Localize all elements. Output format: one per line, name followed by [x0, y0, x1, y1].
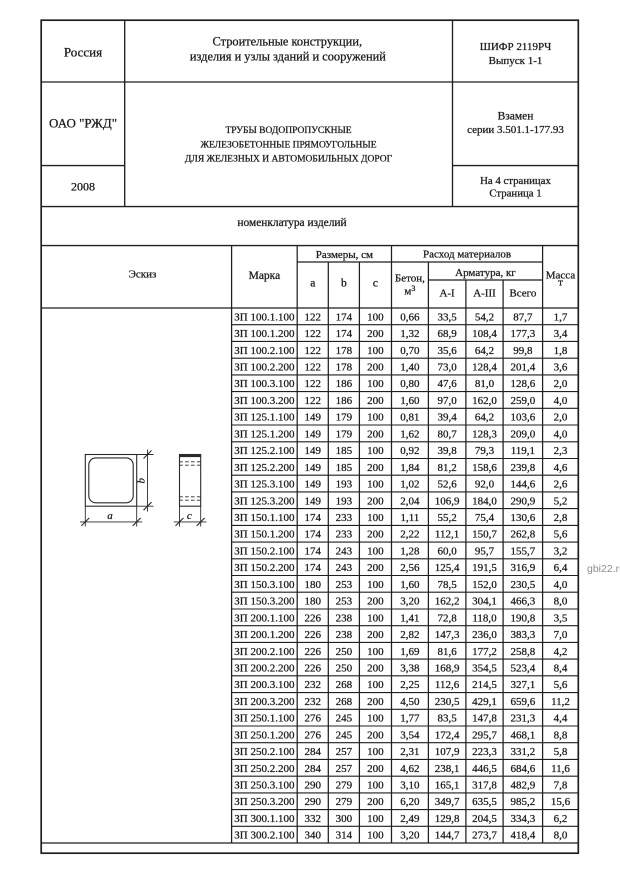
svg-text:ЗП 125.1.200: ЗП 125.1.200 — [234, 428, 295, 440]
svg-text:165,1: 165,1 — [435, 780, 460, 792]
svg-text:200: 200 — [367, 495, 384, 507]
svg-text:180: 180 — [305, 579, 322, 591]
svg-text:ЗП 300.1.100: ЗП 300.1.100 — [234, 813, 295, 825]
svg-text:64,2: 64,2 — [475, 412, 494, 424]
svg-text:262,8: 262,8 — [511, 529, 536, 541]
svg-text:6,20: 6,20 — [400, 796, 420, 808]
svg-text:Арматура, кг: Арматура, кг — [455, 267, 516, 279]
svg-text:ЗП 200.1.200: ЗП 200.1.200 — [234, 629, 295, 641]
svg-text:259,0: 259,0 — [511, 395, 536, 407]
svg-text:100: 100 — [367, 412, 384, 424]
svg-text:174: 174 — [305, 529, 322, 541]
svg-text:200: 200 — [367, 395, 384, 407]
svg-text:Расход материалов: Расход материалов — [423, 248, 511, 260]
svg-text:130,6: 130,6 — [511, 512, 536, 524]
svg-text:284: 284 — [305, 763, 322, 775]
svg-text:4,6: 4,6 — [554, 462, 568, 474]
svg-text:200: 200 — [367, 428, 384, 440]
svg-text:186: 186 — [336, 395, 353, 407]
svg-text:149: 149 — [305, 479, 322, 491]
svg-text:2,22: 2,22 — [400, 529, 419, 541]
svg-text:ЗП 100.2.100: ЗП 100.2.100 — [234, 345, 295, 357]
svg-text:ЗП 250.1.100: ЗП 250.1.100 — [234, 713, 295, 725]
svg-text:5,6: 5,6 — [554, 529, 568, 541]
svg-text:144,7: 144,7 — [435, 830, 460, 842]
svg-text:3,4: 3,4 — [554, 328, 568, 340]
svg-text:226: 226 — [305, 612, 322, 624]
svg-text:4,0: 4,0 — [554, 579, 568, 591]
svg-text:0,66: 0,66 — [400, 311, 420, 323]
svg-text:446,5: 446,5 — [472, 763, 497, 775]
svg-text:ОАО "РЖД": ОАО "РЖД" — [49, 116, 117, 131]
svg-text:122: 122 — [305, 395, 322, 407]
svg-text:100: 100 — [367, 746, 384, 758]
svg-text:354,5: 354,5 — [472, 663, 497, 675]
svg-text:168,9: 168,9 — [435, 663, 460, 675]
svg-text:129,8: 129,8 — [435, 813, 460, 825]
svg-text:gbi22.ru: gbi22.ru — [587, 563, 620, 575]
svg-text:Размеры, см: Размеры, см — [316, 249, 373, 261]
svg-text:3,6: 3,6 — [554, 362, 568, 374]
svg-text:81,2: 81,2 — [437, 462, 456, 474]
svg-text:8,0: 8,0 — [554, 830, 568, 842]
svg-text:300: 300 — [336, 813, 353, 825]
svg-text:ЗП 100.2.200: ЗП 100.2.200 — [234, 362, 295, 374]
svg-text:239,8: 239,8 — [511, 462, 536, 474]
svg-text:ЗП 100.3.200: ЗП 100.3.200 — [234, 395, 295, 407]
svg-text:2,0: 2,0 — [554, 412, 568, 424]
svg-text:6,4: 6,4 — [554, 562, 568, 574]
svg-text:118,0: 118,0 — [472, 612, 497, 624]
svg-text:100: 100 — [367, 780, 384, 792]
svg-text:ЗП 150.3.200: ЗП 150.3.200 — [234, 596, 295, 608]
svg-text:номенклатура изделий: номенклатура изделий — [237, 217, 346, 229]
svg-text:5,2: 5,2 — [554, 495, 568, 507]
svg-text:99,8: 99,8 — [513, 345, 533, 357]
svg-text:122: 122 — [305, 362, 322, 374]
svg-text:Эскиз: Эскиз — [129, 269, 157, 281]
svg-text:482,9: 482,9 — [511, 780, 536, 792]
svg-text:а: а — [107, 510, 113, 522]
svg-text:174: 174 — [336, 311, 353, 323]
svg-text:193: 193 — [336, 479, 353, 491]
svg-text:268: 268 — [336, 696, 353, 708]
svg-text:4,4: 4,4 — [554, 713, 568, 725]
svg-text:108,4: 108,4 — [472, 328, 497, 340]
svg-text:185: 185 — [336, 445, 353, 457]
svg-text:Выпуск 1-1: Выпуск 1-1 — [489, 55, 543, 67]
svg-text:ТРУБЫ ВОДОПРОПУСКНЫЕ: ТРУБЫ ВОДОПРОПУСКНЫЕ — [225, 126, 351, 136]
svg-text:ЗП 125.2.200: ЗП 125.2.200 — [234, 462, 295, 474]
svg-text:b: b — [136, 477, 148, 483]
svg-text:204,5: 204,5 — [472, 813, 497, 825]
svg-text:ЗП 125.3.200: ЗП 125.3.200 — [234, 495, 295, 507]
svg-text:3,2: 3,2 — [554, 545, 568, 557]
svg-text:2008: 2008 — [71, 179, 95, 193]
svg-text:75,4: 75,4 — [475, 512, 495, 524]
svg-text:253: 253 — [336, 596, 353, 608]
svg-text:174: 174 — [305, 545, 322, 557]
svg-text:128,4: 128,4 — [472, 362, 497, 374]
svg-text:276: 276 — [305, 713, 322, 725]
svg-text:245: 245 — [336, 713, 353, 725]
svg-text:684,6: 684,6 — [511, 763, 536, 775]
svg-text:100: 100 — [367, 579, 384, 591]
svg-text:200: 200 — [367, 529, 384, 541]
svg-text:ЗП 100.3.100: ЗП 100.3.100 — [234, 378, 295, 390]
svg-text:238: 238 — [336, 612, 353, 624]
svg-text:144,6: 144,6 — [511, 479, 536, 491]
svg-text:81,0: 81,0 — [475, 378, 495, 390]
svg-text:Страница 1: Страница 1 — [489, 187, 541, 199]
svg-text:985,2: 985,2 — [511, 796, 536, 808]
svg-text:ЗП 125.3.100: ЗП 125.3.100 — [234, 479, 295, 491]
svg-text:1,69: 1,69 — [400, 646, 420, 658]
svg-text:2,82: 2,82 — [400, 629, 419, 641]
svg-text:429,1: 429,1 — [472, 696, 497, 708]
svg-text:2,49: 2,49 — [400, 813, 420, 825]
svg-text:200: 200 — [367, 629, 384, 641]
svg-text:100: 100 — [367, 311, 384, 323]
svg-text:209,0: 209,0 — [511, 428, 536, 440]
svg-text:4,2: 4,2 — [554, 646, 568, 658]
svg-text:На 4 страницах: На 4 страницах — [480, 175, 551, 187]
svg-text:331,2: 331,2 — [511, 746, 536, 758]
svg-text:8,4: 8,4 — [554, 663, 568, 675]
svg-text:332: 332 — [305, 813, 322, 825]
svg-text:200: 200 — [367, 796, 384, 808]
svg-text:1,41: 1,41 — [400, 612, 419, 624]
svg-text:238: 238 — [336, 629, 353, 641]
svg-text:1,60: 1,60 — [400, 579, 420, 591]
svg-text:60,0: 60,0 — [437, 545, 457, 557]
svg-text:178: 178 — [336, 345, 353, 357]
svg-text:с: с — [187, 510, 192, 522]
svg-text:0,70: 0,70 — [400, 345, 420, 357]
svg-text:100: 100 — [367, 612, 384, 624]
svg-text:78,5: 78,5 — [437, 579, 457, 591]
svg-text:314: 314 — [336, 830, 353, 842]
svg-text:200: 200 — [367, 763, 384, 775]
svg-text:193: 193 — [336, 495, 353, 507]
svg-text:349,7: 349,7 — [435, 796, 460, 808]
svg-text:253: 253 — [336, 579, 353, 591]
svg-text:1,77: 1,77 — [400, 713, 420, 725]
svg-text:316,9: 316,9 — [511, 562, 536, 574]
svg-text:290: 290 — [305, 780, 322, 792]
svg-text:334,3: 334,3 — [511, 813, 536, 825]
svg-text:185: 185 — [336, 462, 353, 474]
svg-text:200: 200 — [367, 729, 384, 741]
svg-text:1,60: 1,60 — [400, 395, 420, 407]
svg-text:3,10: 3,10 — [400, 780, 420, 792]
svg-text:64,2: 64,2 — [475, 345, 494, 357]
svg-text:200: 200 — [367, 462, 384, 474]
svg-text:ЗП 150.2.100: ЗП 150.2.100 — [234, 545, 295, 557]
svg-text:1,8: 1,8 — [554, 345, 568, 357]
svg-text:250: 250 — [336, 663, 353, 675]
svg-text:149: 149 — [305, 462, 322, 474]
svg-text:54,2: 54,2 — [475, 311, 494, 323]
svg-text:ЗП 250.2.100: ЗП 250.2.100 — [234, 746, 295, 758]
svg-text:39,8: 39,8 — [437, 445, 457, 457]
svg-text:4,0: 4,0 — [554, 395, 568, 407]
svg-text:100: 100 — [367, 512, 384, 524]
svg-text:100: 100 — [367, 445, 384, 457]
svg-text:268: 268 — [336, 679, 353, 691]
svg-text:0,80: 0,80 — [400, 378, 420, 390]
svg-text:147,3: 147,3 — [435, 629, 460, 641]
svg-text:33,5: 33,5 — [437, 311, 457, 323]
svg-text:81,6: 81,6 — [437, 646, 457, 658]
svg-text:ЗП 100.1.200: ЗП 100.1.200 — [234, 328, 295, 340]
svg-text:290,9: 290,9 — [511, 495, 536, 507]
svg-text:122: 122 — [305, 328, 322, 340]
svg-text:232: 232 — [305, 679, 322, 691]
svg-text:83,5: 83,5 — [437, 713, 457, 725]
svg-text:233: 233 — [336, 529, 353, 541]
svg-text:155,7: 155,7 — [511, 545, 536, 557]
svg-text:15,6: 15,6 — [551, 796, 571, 808]
svg-text:Всего: Всего — [509, 287, 536, 299]
svg-text:180: 180 — [305, 596, 322, 608]
svg-text:изделия и узлы зданий и сооруж: изделия и узлы зданий и сооружений — [190, 49, 386, 63]
svg-text:1,11: 1,11 — [400, 512, 419, 524]
svg-text:Строительные конструкции,: Строительные конструкции, — [213, 34, 363, 48]
svg-text:174: 174 — [336, 328, 353, 340]
svg-text:174: 174 — [305, 562, 322, 574]
svg-text:8,0: 8,0 — [554, 596, 568, 608]
svg-text:250: 250 — [336, 646, 353, 658]
svg-text:327,1: 327,1 — [511, 679, 536, 691]
svg-text:149: 149 — [305, 495, 322, 507]
svg-text:186: 186 — [336, 378, 353, 390]
svg-text:ЗП 125.1.100: ЗП 125.1.100 — [234, 412, 295, 424]
svg-text:2,8: 2,8 — [554, 512, 568, 524]
svg-text:177,3: 177,3 — [511, 328, 536, 340]
svg-text:0,81: 0,81 — [400, 412, 419, 424]
svg-text:2,04: 2,04 — [400, 495, 420, 507]
svg-text:А-I: А-I — [439, 287, 455, 299]
svg-text:284: 284 — [305, 746, 322, 758]
svg-text:233: 233 — [336, 512, 353, 524]
svg-text:100: 100 — [367, 679, 384, 691]
svg-text:174: 174 — [305, 512, 322, 524]
svg-text:112,1: 112,1 — [435, 529, 459, 541]
svg-text:80,7: 80,7 — [437, 428, 457, 440]
svg-text:79,3: 79,3 — [475, 445, 495, 457]
svg-text:200: 200 — [367, 696, 384, 708]
svg-text:ЗП 150.3.100: ЗП 150.3.100 — [234, 579, 295, 591]
svg-text:659,6: 659,6 — [511, 696, 536, 708]
svg-text:ЗП 250.1.200: ЗП 250.1.200 — [234, 729, 295, 741]
svg-text:ШИФР 2119РЧ: ШИФР 2119РЧ — [480, 41, 551, 53]
svg-text:1,40: 1,40 — [400, 362, 420, 374]
svg-text:1,62: 1,62 — [400, 428, 419, 440]
svg-text:55,2: 55,2 — [437, 512, 456, 524]
svg-text:150,7: 150,7 — [472, 529, 497, 541]
svg-text:107,9: 107,9 — [435, 746, 460, 758]
svg-text:340: 340 — [305, 830, 322, 842]
svg-text:ЗП 200.3.200: ЗП 200.3.200 — [234, 696, 295, 708]
svg-text:223,3: 223,3 — [472, 746, 497, 758]
svg-text:100: 100 — [367, 345, 384, 357]
svg-text:230,5: 230,5 — [511, 579, 536, 591]
svg-text:257: 257 — [336, 746, 353, 758]
svg-text:230,5: 230,5 — [435, 696, 460, 708]
svg-text:ЗП 150.2.200: ЗП 150.2.200 — [234, 562, 295, 574]
svg-text:122: 122 — [305, 378, 322, 390]
svg-text:122: 122 — [305, 311, 322, 323]
svg-text:2,25: 2,25 — [400, 679, 420, 691]
svg-text:178: 178 — [336, 362, 353, 374]
svg-text:112,6: 112,6 — [435, 679, 460, 691]
svg-text:2,6: 2,6 — [554, 479, 568, 491]
svg-text:418,4: 418,4 — [511, 830, 536, 842]
svg-text:95,7: 95,7 — [475, 545, 495, 557]
svg-text:128,3: 128,3 — [472, 428, 497, 440]
svg-text:68,9: 68,9 — [437, 328, 457, 340]
svg-text:149: 149 — [305, 445, 322, 457]
svg-text:158,6: 158,6 — [472, 462, 497, 474]
svg-text:73,0: 73,0 — [437, 362, 457, 374]
svg-text:т: т — [558, 277, 563, 289]
svg-text:383,3: 383,3 — [511, 629, 536, 641]
svg-text:Взамен: Взамен — [498, 110, 534, 122]
svg-text:245: 245 — [336, 729, 353, 741]
svg-text:149: 149 — [305, 412, 322, 424]
svg-text:3,20: 3,20 — [400, 596, 420, 608]
svg-text:100: 100 — [367, 545, 384, 557]
svg-text:290: 290 — [305, 796, 322, 808]
svg-text:119,1: 119,1 — [511, 445, 535, 457]
svg-text:295,7: 295,7 — [472, 729, 497, 741]
svg-text:149: 149 — [305, 428, 322, 440]
svg-text:200: 200 — [367, 328, 384, 340]
svg-text:ДЛЯ ЖЕЛЕЗНЫХ И АВТОМОБИЛЬНЫХ Д: ДЛЯ ЖЕЛЕЗНЫХ И АВТОМОБИЛЬНЫХ ДОРОГ — [185, 155, 393, 165]
svg-text:100: 100 — [367, 378, 384, 390]
svg-text:ЗП 250.3.100: ЗП 250.3.100 — [234, 780, 295, 792]
svg-text:236,0: 236,0 — [472, 629, 497, 641]
svg-text:11,2: 11,2 — [551, 696, 570, 708]
svg-text:8,8: 8,8 — [554, 729, 568, 741]
svg-text:1,28: 1,28 — [400, 545, 420, 557]
svg-text:2,31: 2,31 — [400, 746, 419, 758]
svg-text:ЗП 200.3.100: ЗП 200.3.100 — [234, 679, 295, 691]
svg-text:2,56: 2,56 — [400, 562, 420, 574]
svg-text:172,4: 172,4 — [435, 729, 460, 741]
svg-text:92,0: 92,0 — [475, 479, 495, 491]
svg-text:179: 179 — [336, 428, 353, 440]
svg-text:11,6: 11,6 — [551, 763, 570, 775]
svg-text:Россия: Россия — [64, 44, 102, 59]
svg-text:72,8: 72,8 — [437, 612, 457, 624]
svg-text:243: 243 — [336, 545, 353, 557]
svg-text:243: 243 — [336, 562, 353, 574]
svg-text:128,6: 128,6 — [511, 378, 536, 390]
svg-text:0,92: 0,92 — [400, 445, 419, 457]
svg-text:177,2: 177,2 — [472, 646, 497, 658]
svg-text:232: 232 — [305, 696, 322, 708]
svg-text:273,7: 273,7 — [472, 830, 497, 842]
svg-text:4,0: 4,0 — [554, 428, 568, 440]
svg-text:106,9: 106,9 — [435, 495, 460, 507]
svg-text:1,84: 1,84 — [400, 462, 420, 474]
svg-text:179: 179 — [336, 412, 353, 424]
svg-text:276: 276 — [305, 729, 322, 741]
svg-text:226: 226 — [305, 663, 322, 675]
svg-text:100: 100 — [367, 813, 384, 825]
svg-text:Бетон,: Бетон, — [395, 272, 425, 284]
svg-text:97,0: 97,0 — [437, 395, 457, 407]
svg-text:87,7: 87,7 — [513, 311, 533, 323]
svg-text:100: 100 — [367, 479, 384, 491]
svg-text:190,8: 190,8 — [511, 612, 536, 624]
svg-text:ЗП 300.2.100: ЗП 300.2.100 — [234, 830, 295, 842]
svg-text:201,4: 201,4 — [511, 362, 536, 374]
svg-text:4,62: 4,62 — [400, 763, 419, 775]
svg-text:Марка: Марка — [249, 270, 281, 282]
svg-text:с: с — [373, 277, 378, 289]
svg-text:147,8: 147,8 — [472, 713, 497, 725]
svg-text:162,0: 162,0 — [472, 395, 497, 407]
svg-text:191,5: 191,5 — [472, 562, 497, 574]
svg-text:200: 200 — [367, 562, 384, 574]
svg-text:3,5: 3,5 — [554, 612, 568, 624]
svg-text:а: а — [310, 277, 315, 289]
svg-text:52,6: 52,6 — [437, 479, 457, 491]
svg-text:35,6: 35,6 — [437, 345, 457, 357]
svg-text:серии 3.501.1-177.93: серии 3.501.1-177.93 — [467, 124, 564, 136]
svg-text:ЗП 200.1.100: ЗП 200.1.100 — [234, 612, 295, 624]
svg-text:b: b — [341, 277, 347, 289]
svg-text:5,8: 5,8 — [554, 746, 568, 758]
svg-text:100: 100 — [367, 830, 384, 842]
svg-text:125,4: 125,4 — [435, 562, 460, 574]
svg-text:2,0: 2,0 — [554, 378, 568, 390]
svg-text:466,3: 466,3 — [511, 596, 536, 608]
svg-text:ЗП 200.2.100: ЗП 200.2.100 — [234, 646, 295, 658]
svg-text:ЗП 100.1.100: ЗП 100.1.100 — [234, 311, 295, 323]
svg-text:200: 200 — [367, 596, 384, 608]
svg-text:226: 226 — [305, 646, 322, 658]
svg-text:279: 279 — [336, 796, 353, 808]
svg-text:2,3: 2,3 — [554, 445, 568, 457]
svg-text:152,0: 152,0 — [472, 579, 497, 591]
svg-text:103,6: 103,6 — [511, 412, 536, 424]
svg-text:226: 226 — [305, 629, 322, 641]
svg-text:ЗП 150.1.100: ЗП 150.1.100 — [234, 512, 295, 524]
svg-text:5,6: 5,6 — [554, 679, 568, 691]
svg-text:162,2: 162,2 — [435, 596, 460, 608]
svg-text:523,4: 523,4 — [511, 663, 536, 675]
svg-text:3,54: 3,54 — [400, 729, 420, 741]
svg-text:ЗП 150.1.200: ЗП 150.1.200 — [234, 529, 295, 541]
svg-text:ЗП 250.2.200: ЗП 250.2.200 — [234, 763, 295, 775]
svg-text:122: 122 — [305, 345, 322, 357]
svg-text:100: 100 — [367, 713, 384, 725]
svg-text:ЗП 125.2.100: ЗП 125.2.100 — [234, 445, 295, 457]
svg-text:231,3: 231,3 — [511, 713, 536, 725]
svg-text:258,8: 258,8 — [511, 646, 536, 658]
svg-text:257: 257 — [336, 763, 353, 775]
svg-text:1,02: 1,02 — [400, 479, 419, 491]
svg-text:317,8: 317,8 — [472, 780, 497, 792]
svg-text:1,32: 1,32 — [400, 328, 419, 340]
svg-text:3,20: 3,20 — [400, 830, 420, 842]
svg-text:238,1: 238,1 — [435, 763, 460, 775]
svg-text:ЗП 200.2.200: ЗП 200.2.200 — [234, 663, 295, 675]
